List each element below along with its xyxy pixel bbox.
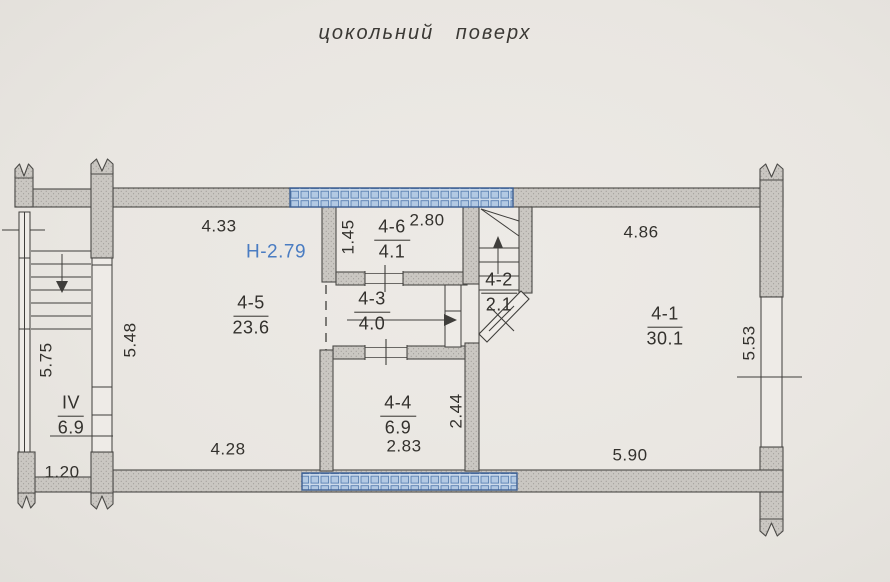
room-area: 4.0 xyxy=(354,315,390,335)
window-strip-bottom xyxy=(302,473,517,490)
dim-2-83: 2.83 xyxy=(386,438,421,455)
room-area: 6.9 xyxy=(380,419,416,439)
dim-5-48: 5.48 xyxy=(122,322,139,357)
room-id: 4-5 xyxy=(233,294,269,317)
dim-2-80: 2.80 xyxy=(409,212,444,229)
window-right xyxy=(737,297,802,447)
page-title: цокольний поверх xyxy=(318,23,531,43)
room-id: 4-6 xyxy=(374,218,410,241)
dim-4-28: 4.28 xyxy=(210,441,245,458)
room-area: 6.9 xyxy=(58,419,85,439)
room-label-4-6: 4-6 4.1 xyxy=(374,218,410,263)
floorplan-page: цокольний поверх 4.33 2.80 4.86 1.45 5.4… xyxy=(0,0,890,582)
dim-1-45: 1.45 xyxy=(340,219,357,254)
room-id: 4-2 xyxy=(481,271,517,294)
room-area: 4.1 xyxy=(374,243,410,263)
shaft-channel xyxy=(92,258,112,452)
room-area: 2.1 xyxy=(481,296,517,316)
height-note: Н-2.79 xyxy=(246,243,306,262)
dim-4-86: 4.86 xyxy=(623,224,658,241)
window-strip-top xyxy=(290,188,513,207)
floorplan-drawing xyxy=(0,0,890,582)
dim-1-20: 1.20 xyxy=(44,464,79,481)
stairs-left xyxy=(31,251,91,329)
room-label-4-3: 4-3 4.0 xyxy=(354,290,390,335)
down-arrow-icon xyxy=(56,281,68,293)
room-label-4-1: 4-1 30.1 xyxy=(646,305,683,350)
room-label-4-5: 4-5 23.6 xyxy=(232,294,269,339)
room-label-4-2: 4-2 2.1 xyxy=(481,271,517,316)
room-area: 23.6 xyxy=(232,319,269,339)
up-arrow-icon xyxy=(493,236,503,248)
dim-5-75: 5.75 xyxy=(38,342,55,377)
room-id: 4-3 xyxy=(354,290,390,313)
dim-4-33: 4.33 xyxy=(201,218,236,235)
left-railing-band xyxy=(19,212,30,452)
room-label-4-4: 4-4 6.9 xyxy=(380,394,416,439)
room-id: IV xyxy=(58,394,84,417)
room-id: 4-1 xyxy=(647,305,683,328)
dim-5-90: 5.90 xyxy=(612,447,647,464)
room-area: 30.1 xyxy=(646,330,683,350)
room-label-IV: IV 6.9 xyxy=(58,394,85,439)
room-id: 4-4 xyxy=(380,394,416,417)
dim-5-53: 5.53 xyxy=(741,325,758,360)
dim-2-44: 2.44 xyxy=(448,393,465,428)
